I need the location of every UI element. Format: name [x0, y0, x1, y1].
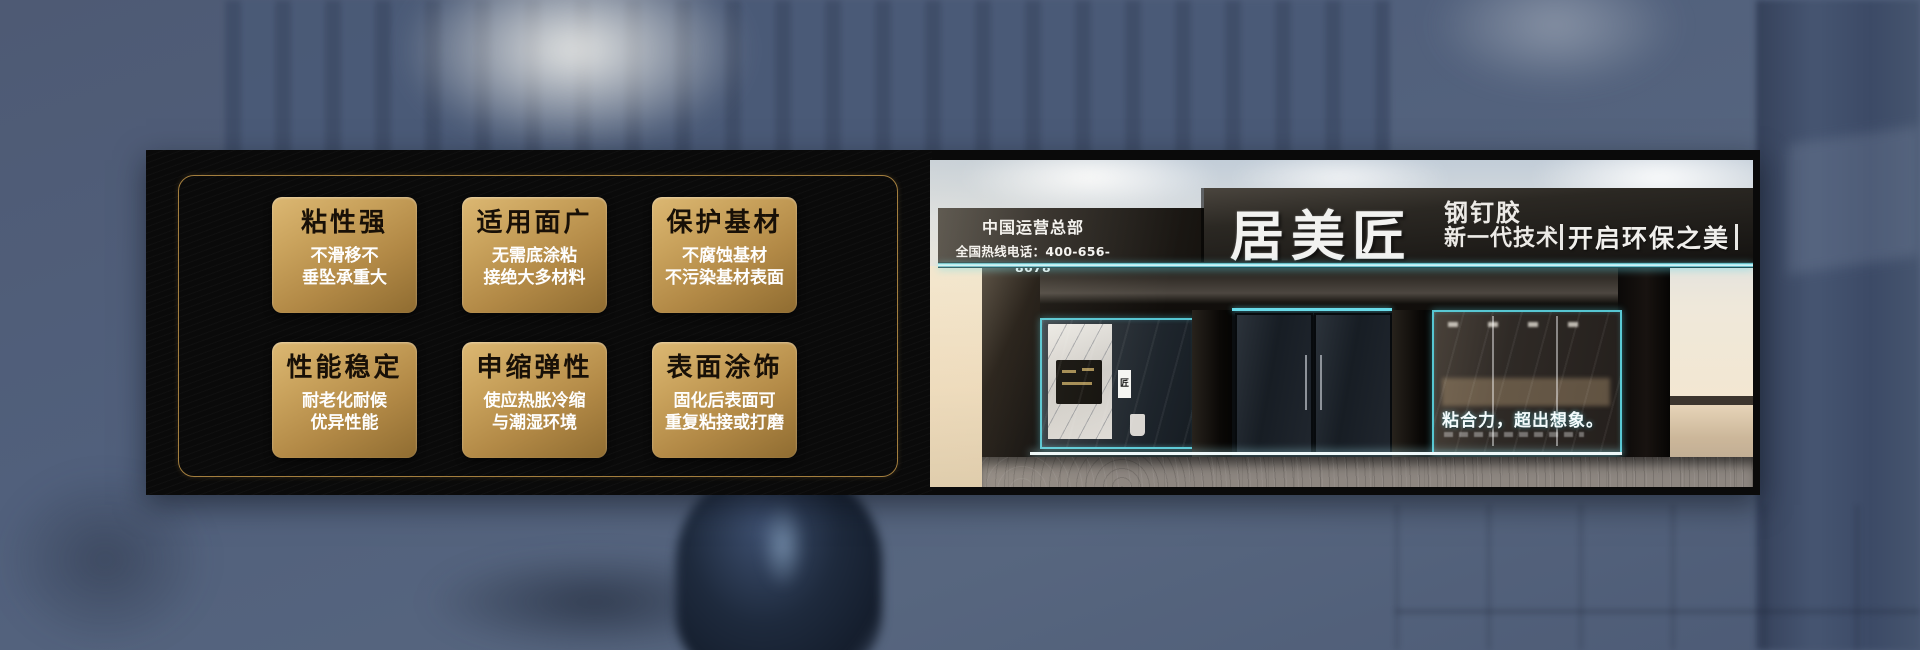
facade-pillar	[1192, 310, 1232, 457]
cobblestone-ground	[982, 457, 1753, 487]
led-strip-fascia	[938, 262, 1753, 268]
bg-display-stands	[1395, 505, 1920, 650]
door-handle	[1320, 355, 1322, 410]
card-line: 与潮湿环境	[462, 412, 607, 434]
door-panel-left	[1235, 313, 1313, 455]
card-line: 接绝大多材料	[462, 267, 607, 289]
feature-card-finish: 表面涂饰 固化后表面可 重复粘接或打磨	[652, 342, 797, 458]
promo-banner-screenshot: 粘性强 不滑移不 垂坠承重大 适用面广 无需底涂粘 接绝大多材料 保护基材 不腐…	[0, 0, 1920, 650]
led-strip-door-top	[1232, 308, 1392, 311]
bg-right-highlight	[1788, 126, 1920, 275]
sign-step-edge	[1201, 188, 1204, 264]
cloud	[960, 160, 1220, 212]
sign-board-main: 居美匠 钢钉胶 新一代技术 开启环保之美	[1204, 188, 1753, 264]
card-line: 耐老化耐候	[272, 390, 417, 412]
bg-window-slats	[225, 0, 1390, 155]
sign-board-left: 中国运营总部 全国热线电话：400-656-8678	[938, 208, 1204, 262]
promo-banner: 粘性强 不滑移不 垂坠承重大 适用面广 无需底涂粘 接绝大多材料 保护基材 不腐…	[146, 150, 1760, 495]
bg-left-shadow	[0, 470, 210, 650]
distant-wall-edge	[1670, 396, 1753, 405]
bg-floor-line	[1395, 610, 1920, 613]
card-line: 不腐蚀基材	[652, 245, 797, 267]
storefront-photo: 匠 粘合力，超出想象。	[930, 160, 1753, 487]
card-line: 使应热胀冷缩	[462, 390, 607, 412]
product-name: 钢钉胶	[1444, 200, 1559, 227]
led-base-line	[1030, 452, 1622, 455]
card-title: 粘性强	[272, 210, 417, 237]
card-title: 表面涂饰	[652, 355, 797, 382]
feature-card-protect: 保护基材 不腐蚀基材 不污染基材表面	[652, 197, 797, 313]
glass-entrance-door	[1232, 308, 1392, 457]
divider-bar	[1560, 224, 1563, 250]
card-line: 不滑移不	[272, 245, 417, 267]
product-lines: 钢钉胶 新一代技术	[1444, 200, 1559, 252]
feature-card-adhesion: 粘性强 不滑移不 垂坠承重大	[272, 197, 417, 313]
facade-pillar	[1392, 310, 1432, 457]
glass-reflection	[1042, 320, 1194, 447]
card-title: 适用面广	[462, 210, 607, 237]
facade-left-wall	[982, 266, 1040, 457]
door-panel-right	[1314, 313, 1392, 455]
brand-name: 居美匠	[1230, 192, 1413, 271]
card-title: 性能稳定	[272, 355, 417, 382]
card-line: 固化后表面可	[652, 390, 797, 412]
divider-bar	[1735, 224, 1738, 250]
hq-label: 中国运营总部	[938, 214, 1128, 238]
card-line: 重复粘接或打磨	[652, 412, 797, 434]
card-line: 不污染基材表面	[652, 267, 797, 289]
hotline-text: 全国热线电话：400-656-8678	[938, 241, 1128, 275]
bg-bottle-highlight	[760, 500, 806, 590]
display-window-left: 匠	[1040, 318, 1196, 449]
feature-card-stable: 性能稳定 耐老化耐候 优异性能	[272, 342, 417, 458]
sand-ground-left	[930, 266, 982, 487]
eco-slogan-text: 开启环保之美	[1568, 219, 1730, 255]
eco-slogan: 开启环保之美	[1555, 219, 1743, 255]
card-line: 垂坠承重大	[272, 267, 417, 289]
facade-right-wall	[1618, 266, 1670, 457]
card-line: 无需底涂粘	[462, 245, 607, 267]
display-window-right: 粘合力，超出想象。	[1432, 310, 1622, 454]
door-handle	[1305, 355, 1307, 410]
feature-card-wide-use: 适用面广 无需底涂粘 接绝大多材料	[462, 197, 607, 313]
card-title: 保护基材	[652, 210, 797, 237]
glass-reflection	[1434, 312, 1620, 452]
feature-card-elastic: 申缩弹性 使应热胀冷缩 与潮湿环境	[462, 342, 607, 458]
bg-bright-blob-right	[1430, 0, 1680, 90]
card-line: 优异性能	[272, 412, 417, 434]
card-title: 申缩弹性	[462, 355, 607, 382]
tech-label: 新一代技术	[1444, 227, 1559, 252]
